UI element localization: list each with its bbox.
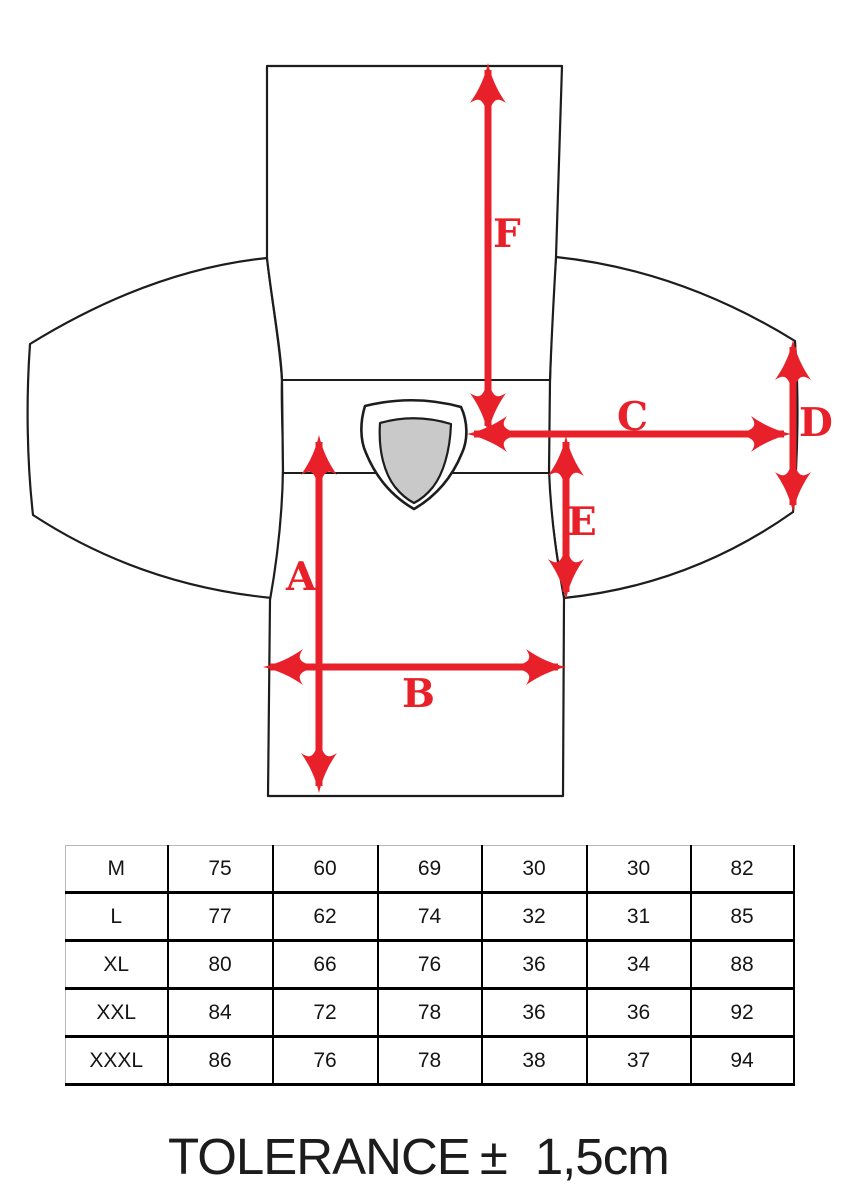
table-row: XL 80 66 76 36 34 88 xyxy=(66,941,794,989)
table-row: M 75 60 69 30 30 82 xyxy=(66,846,794,893)
plus-minus-sign: ± xyxy=(480,1128,507,1185)
table-row: L 77 62 74 32 31 85 xyxy=(66,893,794,941)
size-cell: 80 xyxy=(168,941,273,989)
table-row: XXL 84 72 78 36 36 92 xyxy=(66,989,794,1037)
size-cell: 36 xyxy=(587,989,691,1037)
size-cell: 76 xyxy=(378,941,482,989)
dim-label-d: D xyxy=(799,400,833,446)
size-cell: 37 xyxy=(587,1037,691,1085)
dim-label-f: F xyxy=(493,211,521,257)
size-cell: 30 xyxy=(482,846,587,893)
garment-diagram: F C D E A B xyxy=(0,0,848,822)
size-row-label: XXXL xyxy=(66,1037,168,1085)
size-row-label: L xyxy=(66,893,168,941)
table-row: XXXL 86 76 78 38 37 94 xyxy=(66,1037,794,1085)
size-cell: 78 xyxy=(378,1037,482,1085)
tolerance-note: TOLERANCE±1,5cm xyxy=(168,1127,669,1186)
size-cell: 76 xyxy=(273,1037,378,1085)
dim-label-c: C xyxy=(617,394,648,440)
size-cell: 84 xyxy=(168,989,273,1037)
size-cell: 75 xyxy=(168,846,273,893)
size-row-label: XXL xyxy=(66,989,168,1037)
size-cell: 69 xyxy=(378,846,482,893)
size-cell: 38 xyxy=(482,1037,587,1085)
size-cell: 92 xyxy=(691,989,794,1037)
size-cell: 74 xyxy=(378,893,482,941)
size-cell: 36 xyxy=(482,941,587,989)
size-cell: 77 xyxy=(168,893,273,941)
dim-label-b: B xyxy=(402,671,435,717)
size-cell: 31 xyxy=(587,893,691,941)
size-table: M 75 60 69 30 30 82 L 77 62 74 32 31 85 … xyxy=(65,845,795,1086)
size-cell: 78 xyxy=(378,989,482,1037)
size-cell: 34 xyxy=(587,941,691,989)
dim-label-e: E xyxy=(567,499,597,545)
size-cell: 66 xyxy=(273,941,378,989)
size-cell: 30 xyxy=(587,846,691,893)
dim-label-a: A xyxy=(285,554,317,600)
size-cell: 94 xyxy=(691,1037,794,1085)
tolerance-value: 1,5cm xyxy=(535,1128,669,1185)
tolerance-label: TOLERANCE xyxy=(168,1128,470,1185)
size-cell: 86 xyxy=(168,1037,273,1085)
size-cell: 72 xyxy=(273,989,378,1037)
size-cell: 60 xyxy=(273,846,378,893)
size-row-label: XL xyxy=(66,941,168,989)
size-row-label: M xyxy=(66,846,168,893)
size-cell: 82 xyxy=(691,846,794,893)
left-sleeve xyxy=(28,258,283,598)
size-cell: 88 xyxy=(691,941,794,989)
size-cell: 85 xyxy=(691,893,794,941)
size-cell: 32 xyxy=(482,893,587,941)
size-chart-page: F C D E A B M 75 60 69 30 30 82 L 77 62 xyxy=(0,0,848,1200)
size-cell: 36 xyxy=(482,989,587,1037)
size-cell: 62 xyxy=(273,893,378,941)
